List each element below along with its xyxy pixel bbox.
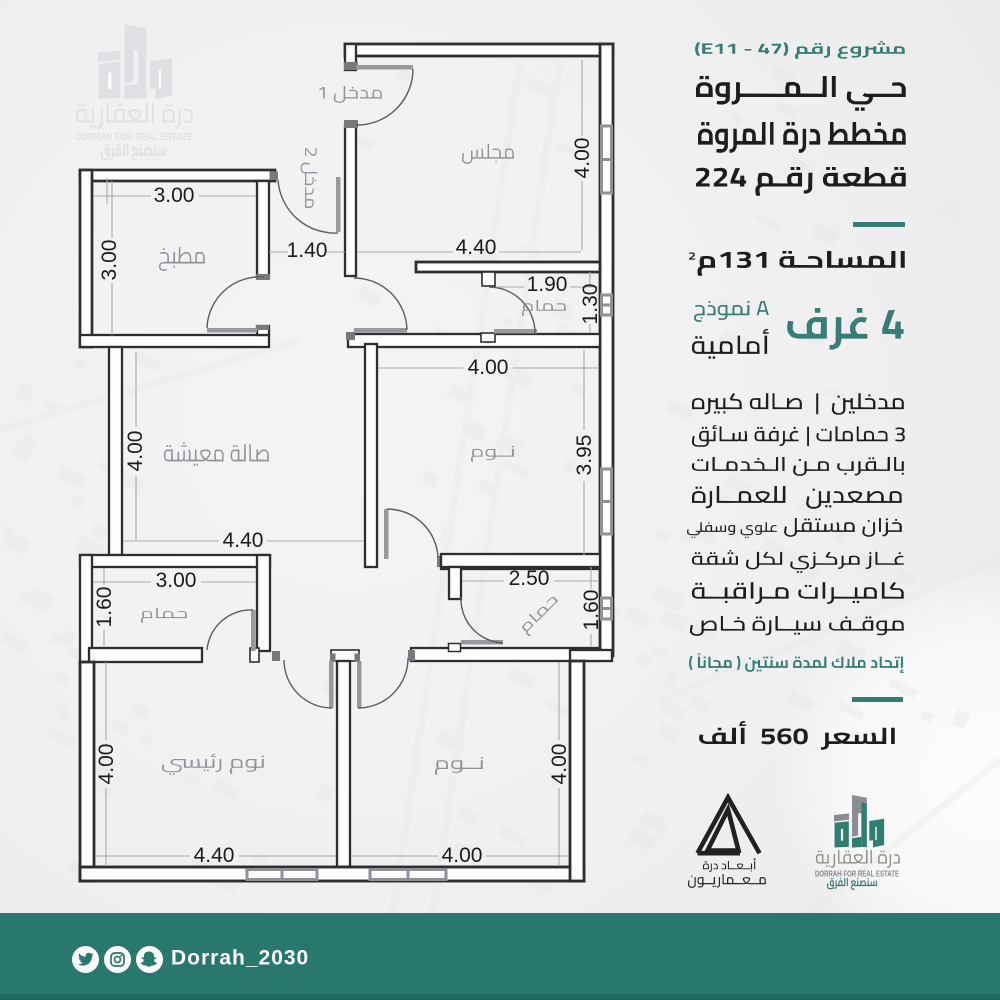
svg-text:4.00: 4.00 <box>124 431 147 472</box>
svg-text:4.40: 4.40 <box>456 236 497 259</box>
svg-text:4.00: 4.00 <box>468 356 509 379</box>
svg-text:1.90: 1.90 <box>527 273 568 296</box>
svg-text:DORRAH FOR REAL ESTATE: DORRAH FOR REAL ESTATE <box>815 870 899 879</box>
svg-text:3.00: 3.00 <box>154 184 195 207</box>
svg-text:4.40: 4.40 <box>194 844 235 867</box>
svg-text:3.95: 3.95 <box>573 435 596 476</box>
svg-text:4.00: 4.00 <box>571 138 594 179</box>
svg-text:4.00: 4.00 <box>548 744 571 785</box>
svg-text:4.00: 4.00 <box>442 844 483 867</box>
svg-text:1.60: 1.60 <box>580 590 603 631</box>
svg-text:2.50: 2.50 <box>509 567 550 590</box>
svg-text:1.30: 1.30 <box>579 284 602 325</box>
svg-text:Dorrah_2030: Dorrah_2030 <box>171 947 309 970</box>
svg-text:3.00: 3.00 <box>98 240 121 281</box>
svg-text:3.00: 3.00 <box>156 569 197 592</box>
svg-text:1.60: 1.60 <box>93 587 116 628</box>
svg-text:4.00: 4.00 <box>95 744 118 785</box>
svg-text:DORRAH FOR REAL ESTATE: DORRAH FOR REAL ESTATE <box>76 132 193 143</box>
svg-text:1.40: 1.40 <box>287 239 328 262</box>
svg-text:4.40: 4.40 <box>223 529 264 552</box>
